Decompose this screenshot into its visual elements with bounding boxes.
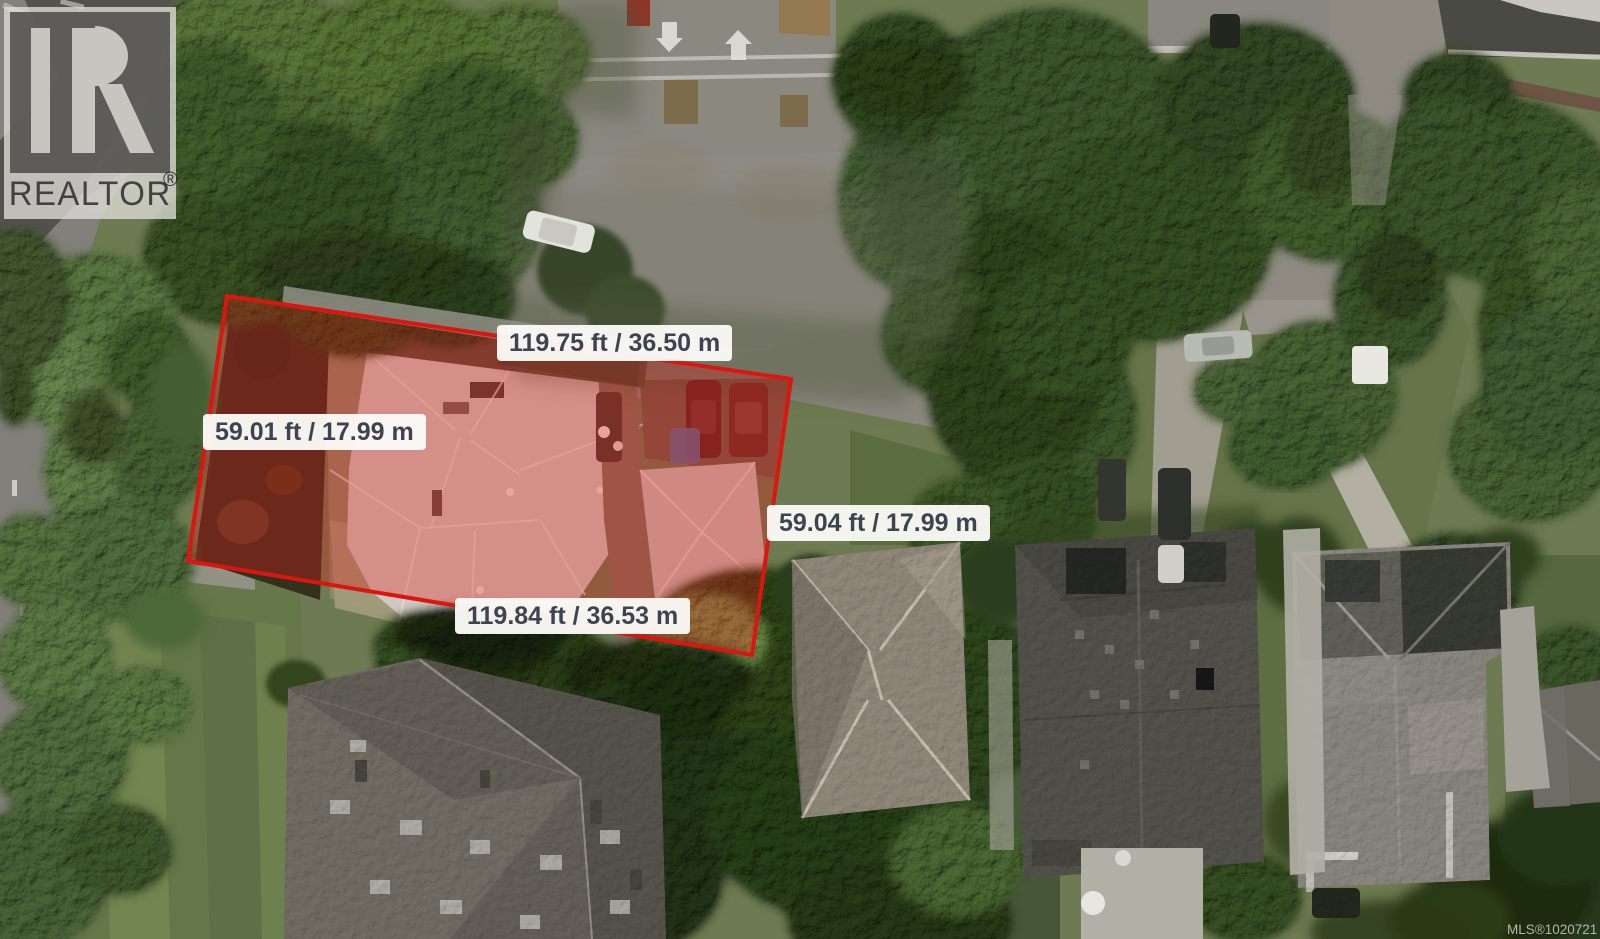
svg-text:MLS®1020721: MLS®1020721 <box>1507 922 1597 937</box>
svg-text:REALTOR: REALTOR <box>9 176 172 214</box>
svg-text:®: ® <box>163 169 178 191</box>
